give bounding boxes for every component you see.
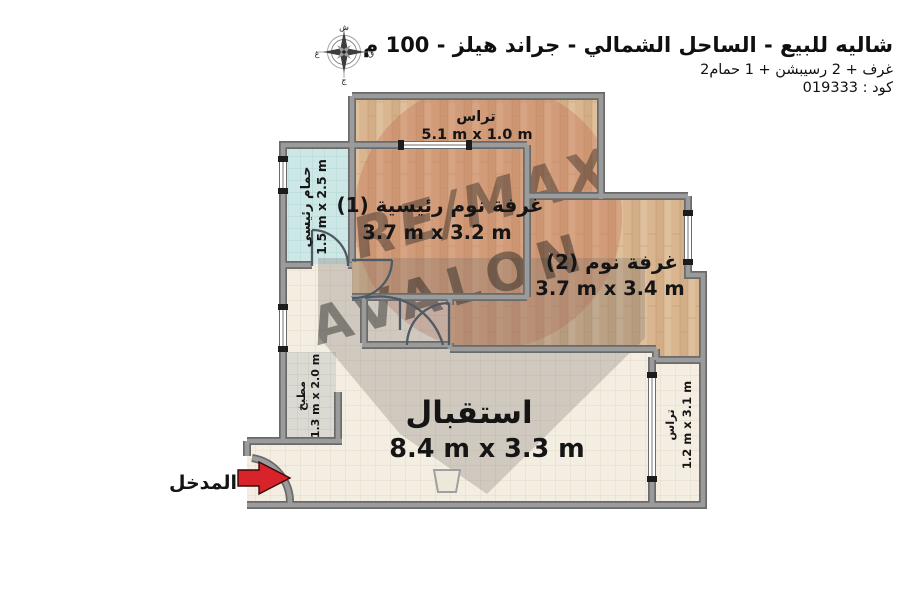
reception-dims: 8.4 m x 3.3 m <box>389 434 584 464</box>
terrace-top-dims: 5.1 m x 1.0 m <box>421 127 532 143</box>
floorplan-page: شاليه للبيع - الساحل الشمالي - جراند هيل… <box>0 0 900 600</box>
reception-name: استقبال <box>405 395 532 431</box>
compass-east-label: ق <box>368 49 374 58</box>
master-bedroom-name: غرفة نوم رئيسية (1) <box>337 193 544 217</box>
terrace-side-dims: 1.2 m x 3.1 m <box>680 381 694 469</box>
floor-plan: RE/MAX AVALON <box>0 0 900 600</box>
bathroom-dims: 1.5 m x 2.5 m <box>314 159 329 255</box>
terrace-side-name: تراس <box>663 409 677 440</box>
planter-icon <box>434 470 460 492</box>
kitchen-dims: 1.3 m x 2.0 m <box>309 354 322 438</box>
compass-west-label: غ <box>315 49 320 58</box>
compass-north-label: ش <box>339 23 349 32</box>
bedroom-2-dims: 3.7 m x 3.4 m <box>535 277 684 300</box>
kitchen-name: مطبخ <box>295 381 308 411</box>
master-bedroom-dims: 3.7 m x 3.2 m <box>362 221 511 244</box>
bedroom-2-name: غرفة نوم (2) <box>546 250 678 274</box>
compass-icon: ش ج ق غ <box>315 23 375 85</box>
compass-south-label: ج <box>341 76 347 85</box>
room-terrace-side <box>652 357 703 505</box>
entrance-label: المدخل <box>169 472 237 494</box>
terrace-top-name: تراس <box>456 109 495 125</box>
bathroom-name: حمام رئيسي <box>299 166 314 247</box>
